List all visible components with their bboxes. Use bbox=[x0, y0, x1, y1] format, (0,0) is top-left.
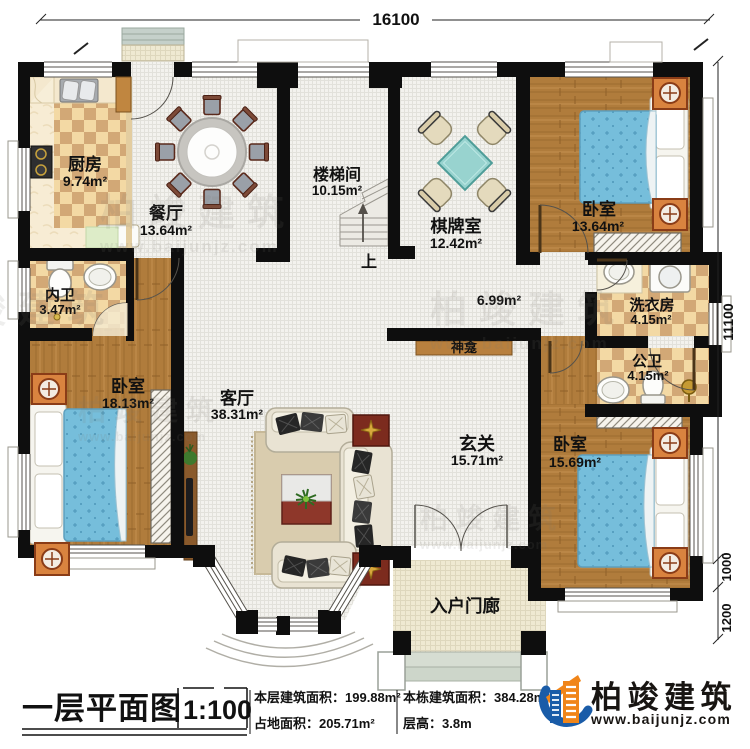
svg-text:www.baijunjz.com: www.baijunjz.com bbox=[429, 334, 609, 353]
svg-text:卧室: 卧室 bbox=[582, 199, 616, 219]
svg-text:1:100: 1:100 bbox=[183, 695, 252, 725]
svg-text:13.64m²: 13.64m² bbox=[572, 218, 624, 234]
svg-text:卧室: 卧室 bbox=[553, 434, 587, 454]
svg-text:16100: 16100 bbox=[372, 10, 419, 29]
svg-text:楼梯间: 楼梯间 bbox=[313, 165, 361, 184]
svg-text:一层平面图: 一层平面图 bbox=[22, 691, 182, 726]
svg-text:厨房: 厨房 bbox=[68, 154, 102, 174]
svg-text:www.baijunjz.com: www.baijunjz.com bbox=[419, 537, 548, 552]
svg-text:www.baijunjz.com: www.baijunjz.com bbox=[99, 237, 279, 256]
svg-text:4.15m²: 4.15m² bbox=[627, 368, 669, 383]
svg-text:9.74m²: 9.74m² bbox=[63, 173, 108, 189]
svg-text:客厅: 客厅 bbox=[219, 388, 254, 408]
svg-text:1200: 1200 bbox=[719, 604, 734, 633]
svg-text:上: 上 bbox=[361, 253, 377, 271]
svg-text:11100: 11100 bbox=[720, 303, 736, 341]
svg-text:12.42m²: 12.42m² bbox=[430, 235, 482, 251]
svg-text:卧室: 卧室 bbox=[111, 376, 145, 396]
svg-text:柏竣建筑: 柏竣建筑 bbox=[591, 680, 737, 715]
svg-text:柏竣建筑: 柏竣建筑 bbox=[420, 502, 564, 534]
svg-text:本栋建筑面积：384.28m²: 本栋建筑面积：384.28m² bbox=[403, 690, 550, 705]
svg-text:www.baijunjz.com: www.baijunjz.com bbox=[590, 711, 731, 727]
svg-text:柏竣建筑: 柏竣建筑 bbox=[78, 394, 222, 426]
svg-text:入户门廊: 入户门廊 bbox=[430, 596, 500, 616]
svg-text:10.15m²: 10.15m² bbox=[312, 183, 363, 198]
svg-text:15.71m²: 15.71m² bbox=[451, 452, 503, 468]
svg-text:本层建筑面积：199.88m²: 本层建筑面积：199.88m² bbox=[254, 690, 401, 705]
svg-text:层高：3.8m: 层高：3.8m bbox=[403, 716, 472, 731]
svg-text:15.69m²: 15.69m² bbox=[549, 454, 601, 470]
svg-text:玄关: 玄关 bbox=[459, 433, 495, 454]
svg-text:1000: 1000 bbox=[719, 553, 734, 582]
svg-text:柏竣建筑: 柏竣建筑 bbox=[100, 191, 296, 233]
svg-text:棋牌室: 棋牌室 bbox=[431, 216, 482, 236]
svg-text:占地面积：205.71m²: 占地面积：205.71m² bbox=[254, 716, 375, 731]
svg-text:柏竣建筑: 柏竣建筑 bbox=[0, 288, 116, 330]
svg-text:4.15m²: 4.15m² bbox=[630, 312, 672, 327]
svg-text:www.baijunjz.com: www.baijunjz.com bbox=[77, 429, 206, 444]
svg-text:柏竣建筑: 柏竣建筑 bbox=[430, 288, 626, 330]
